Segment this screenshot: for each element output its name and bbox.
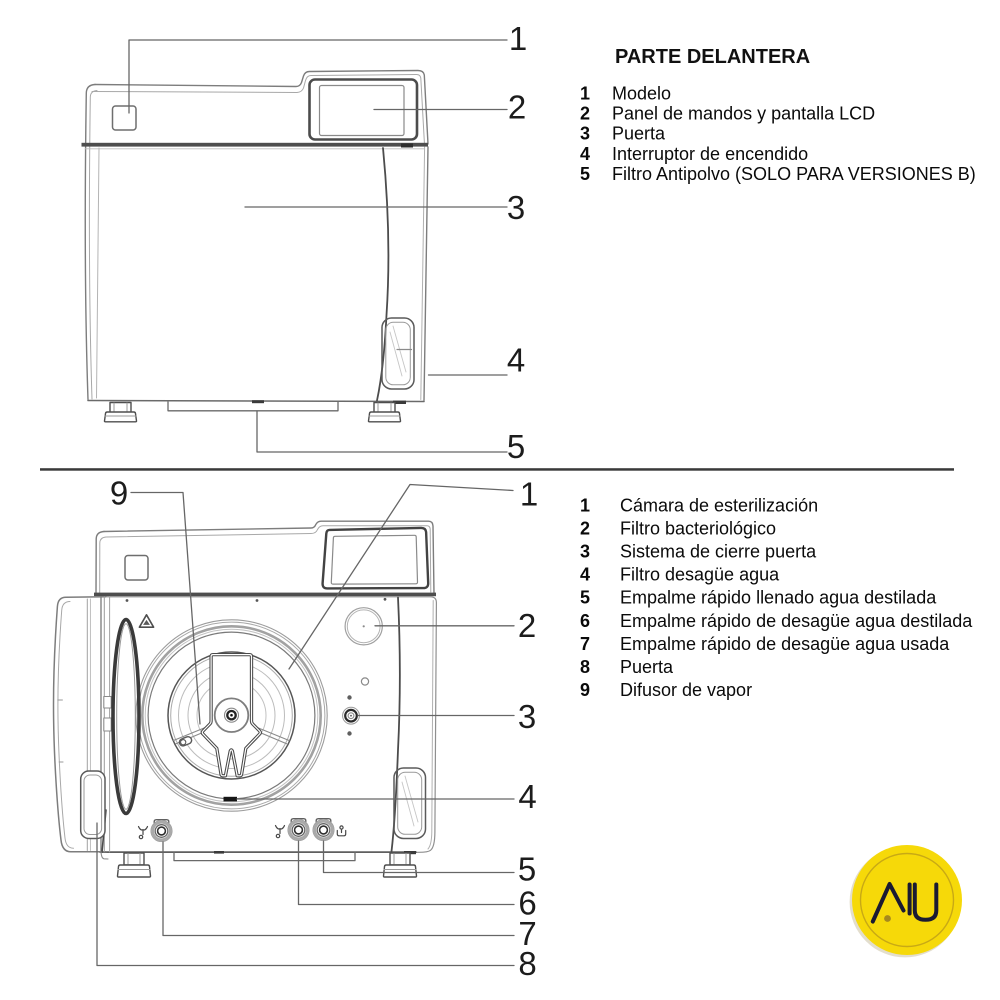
svg-text:Panel de mandos y pantalla LCD: Panel de mandos y pantalla LCD bbox=[612, 104, 875, 124]
svg-text:5: 5 bbox=[580, 588, 590, 608]
svg-text:Difusor de vapor: Difusor de vapor bbox=[620, 680, 752, 700]
svg-text:5: 5 bbox=[507, 428, 525, 465]
svg-text:Filtro desagüe agua: Filtro desagüe agua bbox=[620, 565, 780, 585]
svg-text:Filtro Antipolvo (SOLO PARA VE: Filtro Antipolvo (SOLO PARA VERSIONES B) bbox=[612, 164, 976, 184]
svg-text:8: 8 bbox=[580, 657, 590, 677]
svg-text:Interruptor de encendido: Interruptor de encendido bbox=[612, 144, 808, 164]
svg-text:5: 5 bbox=[580, 164, 590, 184]
svg-text:3: 3 bbox=[580, 124, 590, 144]
svg-text:4: 4 bbox=[507, 342, 525, 379]
svg-text:2: 2 bbox=[580, 519, 590, 539]
svg-text:1: 1 bbox=[580, 496, 590, 516]
svg-text:Empalme rápido de desagüe agua: Empalme rápido de desagüe agua destilada bbox=[620, 611, 973, 631]
svg-text:Empalme rápido de desagüe agua: Empalme rápido de desagüe agua usada bbox=[620, 634, 950, 654]
svg-text:7: 7 bbox=[580, 634, 590, 654]
svg-text:Empalme rápido llenado agua de: Empalme rápido llenado agua destilada bbox=[620, 588, 937, 608]
svg-text:2: 2 bbox=[518, 607, 536, 644]
svg-text:Filtro bacteriológico: Filtro bacteriológico bbox=[620, 519, 776, 539]
svg-text:Modelo: Modelo bbox=[612, 84, 671, 104]
svg-text:8: 8 bbox=[518, 945, 536, 982]
svg-text:2: 2 bbox=[580, 104, 590, 124]
svg-text:Sistema de cierre puerta: Sistema de cierre puerta bbox=[620, 542, 817, 562]
svg-text:1: 1 bbox=[509, 20, 527, 57]
svg-text:2: 2 bbox=[508, 89, 526, 126]
svg-text:3: 3 bbox=[507, 189, 525, 226]
svg-text:PARTE DELANTERA: PARTE DELANTERA bbox=[615, 46, 810, 68]
svg-text:Cámara de esterilización: Cámara de esterilización bbox=[620, 496, 818, 516]
svg-text:4: 4 bbox=[580, 565, 590, 585]
svg-text:1: 1 bbox=[580, 84, 590, 104]
svg-text:4: 4 bbox=[580, 144, 590, 164]
svg-text:3: 3 bbox=[580, 542, 590, 562]
svg-text:Puerta: Puerta bbox=[620, 657, 674, 677]
svg-text:9: 9 bbox=[110, 475, 128, 512]
svg-text:6: 6 bbox=[580, 611, 590, 631]
svg-text:3: 3 bbox=[518, 698, 536, 735]
svg-text:4: 4 bbox=[518, 778, 536, 815]
svg-text:1: 1 bbox=[520, 476, 538, 513]
svg-text:9: 9 bbox=[580, 680, 590, 700]
svg-text:5: 5 bbox=[518, 851, 536, 888]
svg-text:Puerta: Puerta bbox=[612, 124, 666, 144]
